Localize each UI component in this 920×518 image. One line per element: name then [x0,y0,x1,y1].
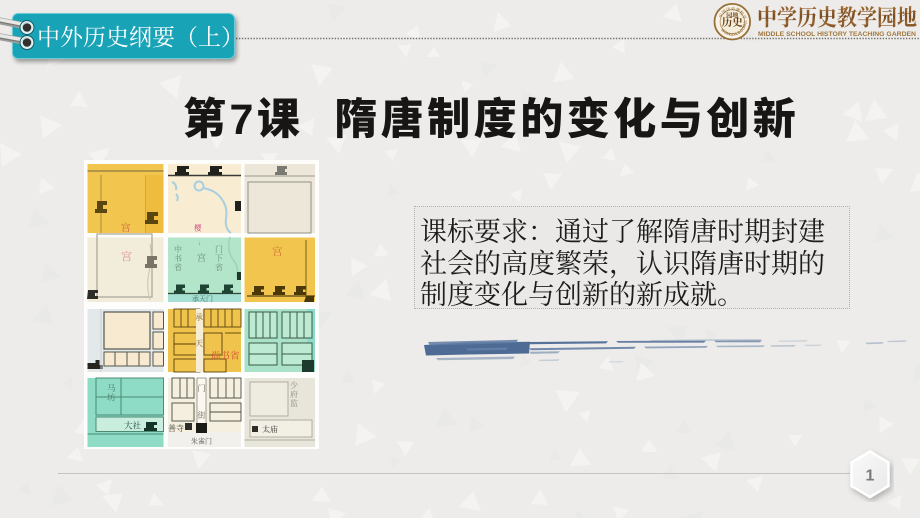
svg-text:尚书省: 尚书省 [211,350,240,362]
svg-text:大社: 大社 [124,421,142,431]
svg-text:↓: ↓ [198,241,201,247]
svg-text:1: 1 [866,468,875,485]
svg-text:街: 街 [198,410,206,420]
svg-text:善寺: 善寺 [168,423,184,433]
svg-text:樱: 樱 [194,223,202,233]
svg-text:少府监: 少府监 [290,380,298,408]
svg-text:门: 门 [198,383,206,393]
svg-text:宫: 宫 [121,249,132,263]
svg-text:太庙: 太庙 [262,424,278,434]
svg-text:天: 天 [195,339,203,348]
svg-text:门下省: 门下省 [215,244,223,272]
svg-text:宫: 宫 [121,222,131,234]
svg-text:承天门: 承天门 [192,294,213,303]
svg-text:承: 承 [195,313,203,322]
svg-text:园地: 园地 [726,12,738,20]
svg-text:宫: 宫 [272,245,283,258]
svg-text:中书省: 中书省 [174,244,182,272]
svg-text:中学历史教学园地: 中学历史教学园地 [757,6,917,31]
svg-text:宫: 宫 [197,252,206,263]
svg-text:马坊: 马坊 [107,383,116,403]
svg-text:朱雀门: 朱雀门 [191,437,212,446]
svg-text:MIDDLE SCHOOL HISTORY TEACHING: MIDDLE SCHOOL HISTORY TEACHING GARDEN [758,31,916,38]
